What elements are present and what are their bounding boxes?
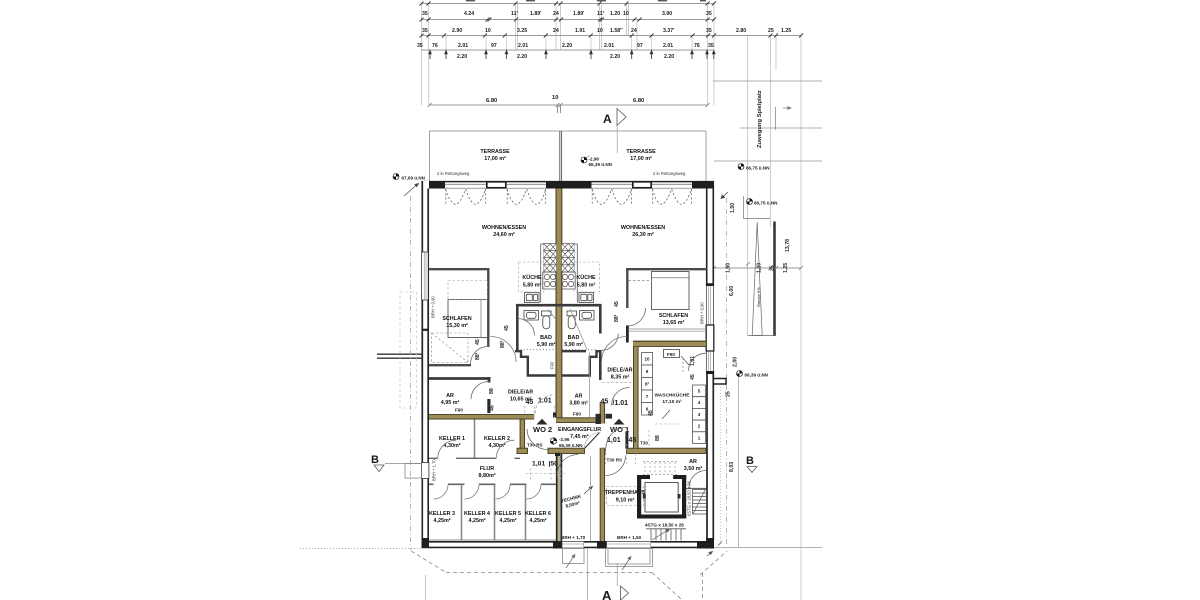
svg-text:TERRASSE: TERRASSE bbox=[626, 149, 656, 155]
svg-text:66,75 ü.NN: 66,75 ü.NN bbox=[746, 166, 770, 171]
svg-text:4,25m²: 4,25m² bbox=[468, 518, 485, 524]
svg-text:WO 2: WO 2 bbox=[533, 425, 552, 434]
svg-text:88¹: 88¹ bbox=[614, 314, 620, 322]
svg-text:35: 35 bbox=[422, 11, 428, 17]
svg-text:66,39 ü.NN: 66,39 ü.NN bbox=[589, 162, 613, 167]
svg-text:25: 25 bbox=[726, 391, 732, 397]
svg-text:BRH + 0,90: BRH + 0,90 bbox=[700, 302, 705, 324]
svg-text:/1.01: /1.01 bbox=[613, 400, 629, 407]
svg-text:DIELE/AR: DIELE/AR bbox=[508, 390, 533, 396]
svg-text:KÜCHE: KÜCHE bbox=[576, 274, 596, 281]
svg-text:TERRASSE: TERRASSE bbox=[480, 149, 510, 155]
svg-text:BRH + 1,70: BRH + 1,70 bbox=[561, 535, 586, 540]
svg-text:66,39 ü.NN: 66,39 ü.NN bbox=[745, 373, 769, 378]
svg-text:2 le Rettungsweg: 2 le Rettungsweg bbox=[653, 171, 686, 176]
svg-text:13,65 m²: 13,65 m² bbox=[663, 320, 685, 326]
svg-text:88¹: 88¹ bbox=[475, 352, 481, 360]
svg-text:5,90 m²: 5,90 m² bbox=[537, 342, 556, 348]
svg-text:11¹: 11¹ bbox=[597, 11, 604, 17]
svg-text:1.89′: 1.89′ bbox=[530, 11, 542, 17]
svg-text:17,10 m²: 17,10 m² bbox=[662, 399, 682, 405]
svg-text:B: B bbox=[746, 455, 754, 467]
svg-text:66,39 ü.NN: 66,39 ü.NN bbox=[559, 443, 583, 448]
svg-text:KELLER 4: KELLER 4 bbox=[464, 511, 490, 517]
svg-text:4,95 m²: 4,95 m² bbox=[441, 400, 460, 406]
svg-text:3,50 m²: 3,50 m² bbox=[684, 466, 703, 472]
svg-text:3: 3 bbox=[698, 412, 701, 417]
svg-text:4: 4 bbox=[698, 400, 701, 405]
svg-text:88: 88 bbox=[655, 435, 661, 441]
svg-text:T30 RS: T30 RS bbox=[527, 443, 543, 448]
svg-text:35: 35 bbox=[706, 11, 712, 17]
svg-text:4,25m²: 4,25m² bbox=[499, 518, 516, 524]
svg-text:13,78: 13,78 bbox=[785, 239, 791, 252]
svg-text:Rampe 6%: Rampe 6% bbox=[756, 287, 761, 307]
svg-text:BRH + 1,70: BRH + 1,70 bbox=[432, 459, 437, 481]
svg-text:2.20: 2.20 bbox=[517, 54, 527, 60]
svg-text:6STG x 18,50 x 26: 6STG x 18,50 x 26 bbox=[687, 480, 692, 516]
svg-text:BRH + 0,90: BRH + 0,90 bbox=[431, 296, 436, 318]
svg-text:2: 2 bbox=[698, 424, 701, 429]
svg-text:1,20: 1,20 bbox=[757, 263, 763, 273]
svg-text:1.91: 1.91 bbox=[575, 28, 585, 34]
svg-text:|50: |50 bbox=[549, 461, 559, 468]
svg-text:A: A bbox=[602, 588, 612, 600]
svg-text:45: 45 bbox=[490, 405, 496, 411]
svg-text:45: 45 bbox=[526, 399, 534, 406]
svg-text:4,30m²: 4,30m² bbox=[443, 443, 460, 449]
svg-text:45: 45 bbox=[690, 374, 696, 380]
svg-text:10: 10 bbox=[644, 357, 650, 362]
svg-text:BRH + 1,50: BRH + 1,50 bbox=[617, 535, 642, 540]
svg-text:24: 24 bbox=[553, 11, 559, 17]
svg-text:F90: F90 bbox=[573, 412, 581, 417]
svg-text:10: 10 bbox=[552, 95, 558, 101]
svg-text:5,80 m²: 5,80 m² bbox=[577, 283, 596, 289]
svg-text:67,09 ü.NN: 67,09 ü.NN bbox=[402, 176, 426, 181]
svg-text:8,80m²: 8,80m² bbox=[478, 473, 495, 479]
svg-text:KELLER 6: KELLER 6 bbox=[525, 511, 551, 517]
svg-text:3.37′: 3.37′ bbox=[663, 28, 675, 34]
svg-text:35: 35 bbox=[706, 28, 712, 34]
svg-text:3.90: 3.90 bbox=[662, 11, 672, 17]
svg-text:7,45 m²: 7,45 m² bbox=[570, 434, 589, 440]
svg-text:2 le Rettungsweg: 2 le Rettungsweg bbox=[437, 171, 470, 176]
svg-text:2.20: 2.20 bbox=[664, 54, 674, 60]
svg-text:WOHNEN/ESSEN: WOHNEN/ESSEN bbox=[621, 225, 665, 231]
svg-text:9: 9 bbox=[646, 369, 649, 374]
svg-text:17,00 m²: 17,00 m² bbox=[630, 156, 652, 162]
svg-text:2.20: 2.20 bbox=[562, 43, 572, 49]
svg-text:76: 76 bbox=[694, 43, 700, 49]
svg-text:F90: F90 bbox=[667, 352, 675, 357]
svg-text:1.01: 1.01 bbox=[538, 398, 552, 405]
svg-text:-2,96: -2,96 bbox=[589, 157, 600, 162]
svg-text:66,75 ü.NN: 66,75 ü.NN bbox=[754, 201, 778, 206]
svg-text:45: 45 bbox=[648, 410, 654, 416]
svg-text:8¹: 8¹ bbox=[645, 382, 650, 387]
svg-text:1,01: 1,01 bbox=[532, 461, 545, 468]
svg-text:F90: F90 bbox=[455, 408, 463, 413]
svg-text:Zuwegung Spielplatz: Zuwegung Spielplatz bbox=[757, 90, 763, 148]
svg-text:3,80 m²: 3,80 m² bbox=[569, 401, 588, 407]
svg-text:SCHLAFEN: SCHLAFEN bbox=[659, 313, 688, 319]
svg-text:5: 5 bbox=[698, 389, 701, 394]
svg-text:DIELE/AR: DIELE/AR bbox=[607, 368, 632, 374]
svg-text:10: 10 bbox=[485, 28, 491, 34]
svg-text:1,60: 1,60 bbox=[726, 263, 732, 273]
svg-text:97: 97 bbox=[491, 43, 497, 49]
svg-text:24,60 m²: 24,60 m² bbox=[493, 232, 515, 238]
svg-text:AR: AR bbox=[575, 394, 583, 400]
svg-text:6.80: 6.80 bbox=[633, 98, 644, 104]
svg-text:88: 88 bbox=[489, 388, 495, 394]
svg-text:EINGANGSFLUR: EINGANGSFLUR bbox=[558, 427, 601, 433]
svg-text:1.58″: 1.58″ bbox=[610, 28, 623, 34]
svg-text:1,25: 1,25 bbox=[783, 263, 789, 273]
svg-text:2.01: 2.01 bbox=[518, 43, 528, 49]
svg-text:4,25m²: 4,25m² bbox=[433, 518, 450, 524]
svg-text:4.24: 4.24 bbox=[464, 11, 474, 17]
svg-text:2.01: 2.01 bbox=[458, 43, 468, 49]
svg-text:1,01: 1,01 bbox=[690, 356, 696, 366]
svg-text:AR: AR bbox=[446, 393, 454, 399]
svg-text:17,00 m²: 17,00 m² bbox=[484, 156, 506, 162]
svg-text:B: B bbox=[371, 454, 379, 466]
svg-text:1: 1 bbox=[698, 435, 701, 440]
svg-text:45: 45 bbox=[614, 301, 620, 307]
svg-text:4,25m²: 4,25m² bbox=[529, 518, 546, 524]
svg-text:WOHNEN/ESSEN: WOHNEN/ESSEN bbox=[482, 225, 526, 231]
svg-text:10: 10 bbox=[597, 28, 603, 34]
svg-text:KELLER 1: KELLER 1 bbox=[439, 436, 465, 442]
svg-text:10: 10 bbox=[623, 11, 629, 17]
svg-text:2.20: 2.20 bbox=[610, 54, 620, 60]
svg-text:45: 45 bbox=[504, 325, 510, 331]
svg-text:AR: AR bbox=[689, 459, 697, 465]
svg-text:2.90: 2.90 bbox=[452, 28, 462, 34]
svg-text:45: 45 bbox=[475, 339, 481, 345]
svg-text:6,00: 6,00 bbox=[729, 286, 735, 296]
svg-text:1.89′: 1.89′ bbox=[573, 11, 585, 17]
svg-text:-2,96: -2,96 bbox=[559, 437, 570, 442]
svg-text:KELLER 3: KELLER 3 bbox=[429, 511, 455, 517]
svg-text:4STG x 18,50 x 26: 4STG x 18,50 x 26 bbox=[645, 523, 684, 528]
svg-text:1,01: 1,01 bbox=[607, 437, 621, 444]
svg-text:T30 RS: T30 RS bbox=[607, 458, 623, 463]
svg-text:24: 24 bbox=[631, 28, 637, 34]
svg-text:KÜCHE: KÜCHE bbox=[522, 274, 542, 281]
svg-text:KELLER 5: KELLER 5 bbox=[495, 511, 521, 517]
svg-text:5,80 m²: 5,80 m² bbox=[523, 283, 542, 289]
svg-text:F90: F90 bbox=[550, 361, 555, 369]
svg-text:2.01: 2.01 bbox=[604, 43, 614, 49]
svg-text:6.80: 6.80 bbox=[486, 98, 497, 104]
svg-text:BAD: BAD bbox=[568, 335, 580, 341]
svg-text:1.20: 1.20 bbox=[610, 11, 620, 17]
svg-text:FLUR: FLUR bbox=[480, 466, 494, 472]
svg-text:T30: T30 bbox=[640, 441, 648, 446]
svg-text:2,00: 2,00 bbox=[733, 357, 739, 367]
svg-text:1,50: 1,50 bbox=[730, 203, 736, 213]
svg-text:35: 35 bbox=[422, 28, 428, 34]
svg-text:25: 25 bbox=[770, 265, 776, 271]
svg-text:35: 35 bbox=[417, 43, 423, 49]
svg-text:76: 76 bbox=[432, 43, 438, 49]
svg-text:BAD: BAD bbox=[540, 335, 552, 341]
svg-text:2.80: 2.80 bbox=[736, 28, 746, 34]
svg-text:45: 45 bbox=[629, 437, 637, 444]
svg-text:7: 7 bbox=[646, 394, 649, 399]
svg-text:25: 25 bbox=[768, 28, 774, 34]
svg-text:26,30 m²: 26,30 m² bbox=[632, 232, 654, 238]
svg-text:SCHLAFEN: SCHLAFEN bbox=[442, 316, 471, 322]
svg-text:2.01: 2.01 bbox=[663, 43, 673, 49]
svg-text:24: 24 bbox=[553, 28, 559, 34]
svg-text:WASCHKÜCHE: WASCHKÜCHE bbox=[655, 392, 691, 399]
svg-text:5,90 m²: 5,90 m² bbox=[564, 342, 583, 348]
svg-text:KELLER 2: KELLER 2 bbox=[484, 436, 510, 442]
svg-text:15,30 m²: 15,30 m² bbox=[446, 323, 468, 329]
svg-text:35: 35 bbox=[708, 43, 714, 49]
svg-text:A: A bbox=[603, 112, 612, 126]
svg-text:11¹: 11¹ bbox=[511, 11, 518, 17]
svg-text:97: 97 bbox=[637, 43, 643, 49]
svg-text:8,03: 8,03 bbox=[729, 462, 735, 472]
svg-text:2.20: 2.20 bbox=[457, 54, 467, 60]
svg-text:8,35 m²: 8,35 m² bbox=[611, 375, 630, 381]
svg-text:3.25: 3.25 bbox=[517, 28, 527, 34]
svg-text:9,10 m²: 9,10 m² bbox=[616, 498, 635, 504]
svg-text:1.25: 1.25 bbox=[781, 28, 791, 34]
svg-text:45: 45 bbox=[601, 399, 609, 406]
